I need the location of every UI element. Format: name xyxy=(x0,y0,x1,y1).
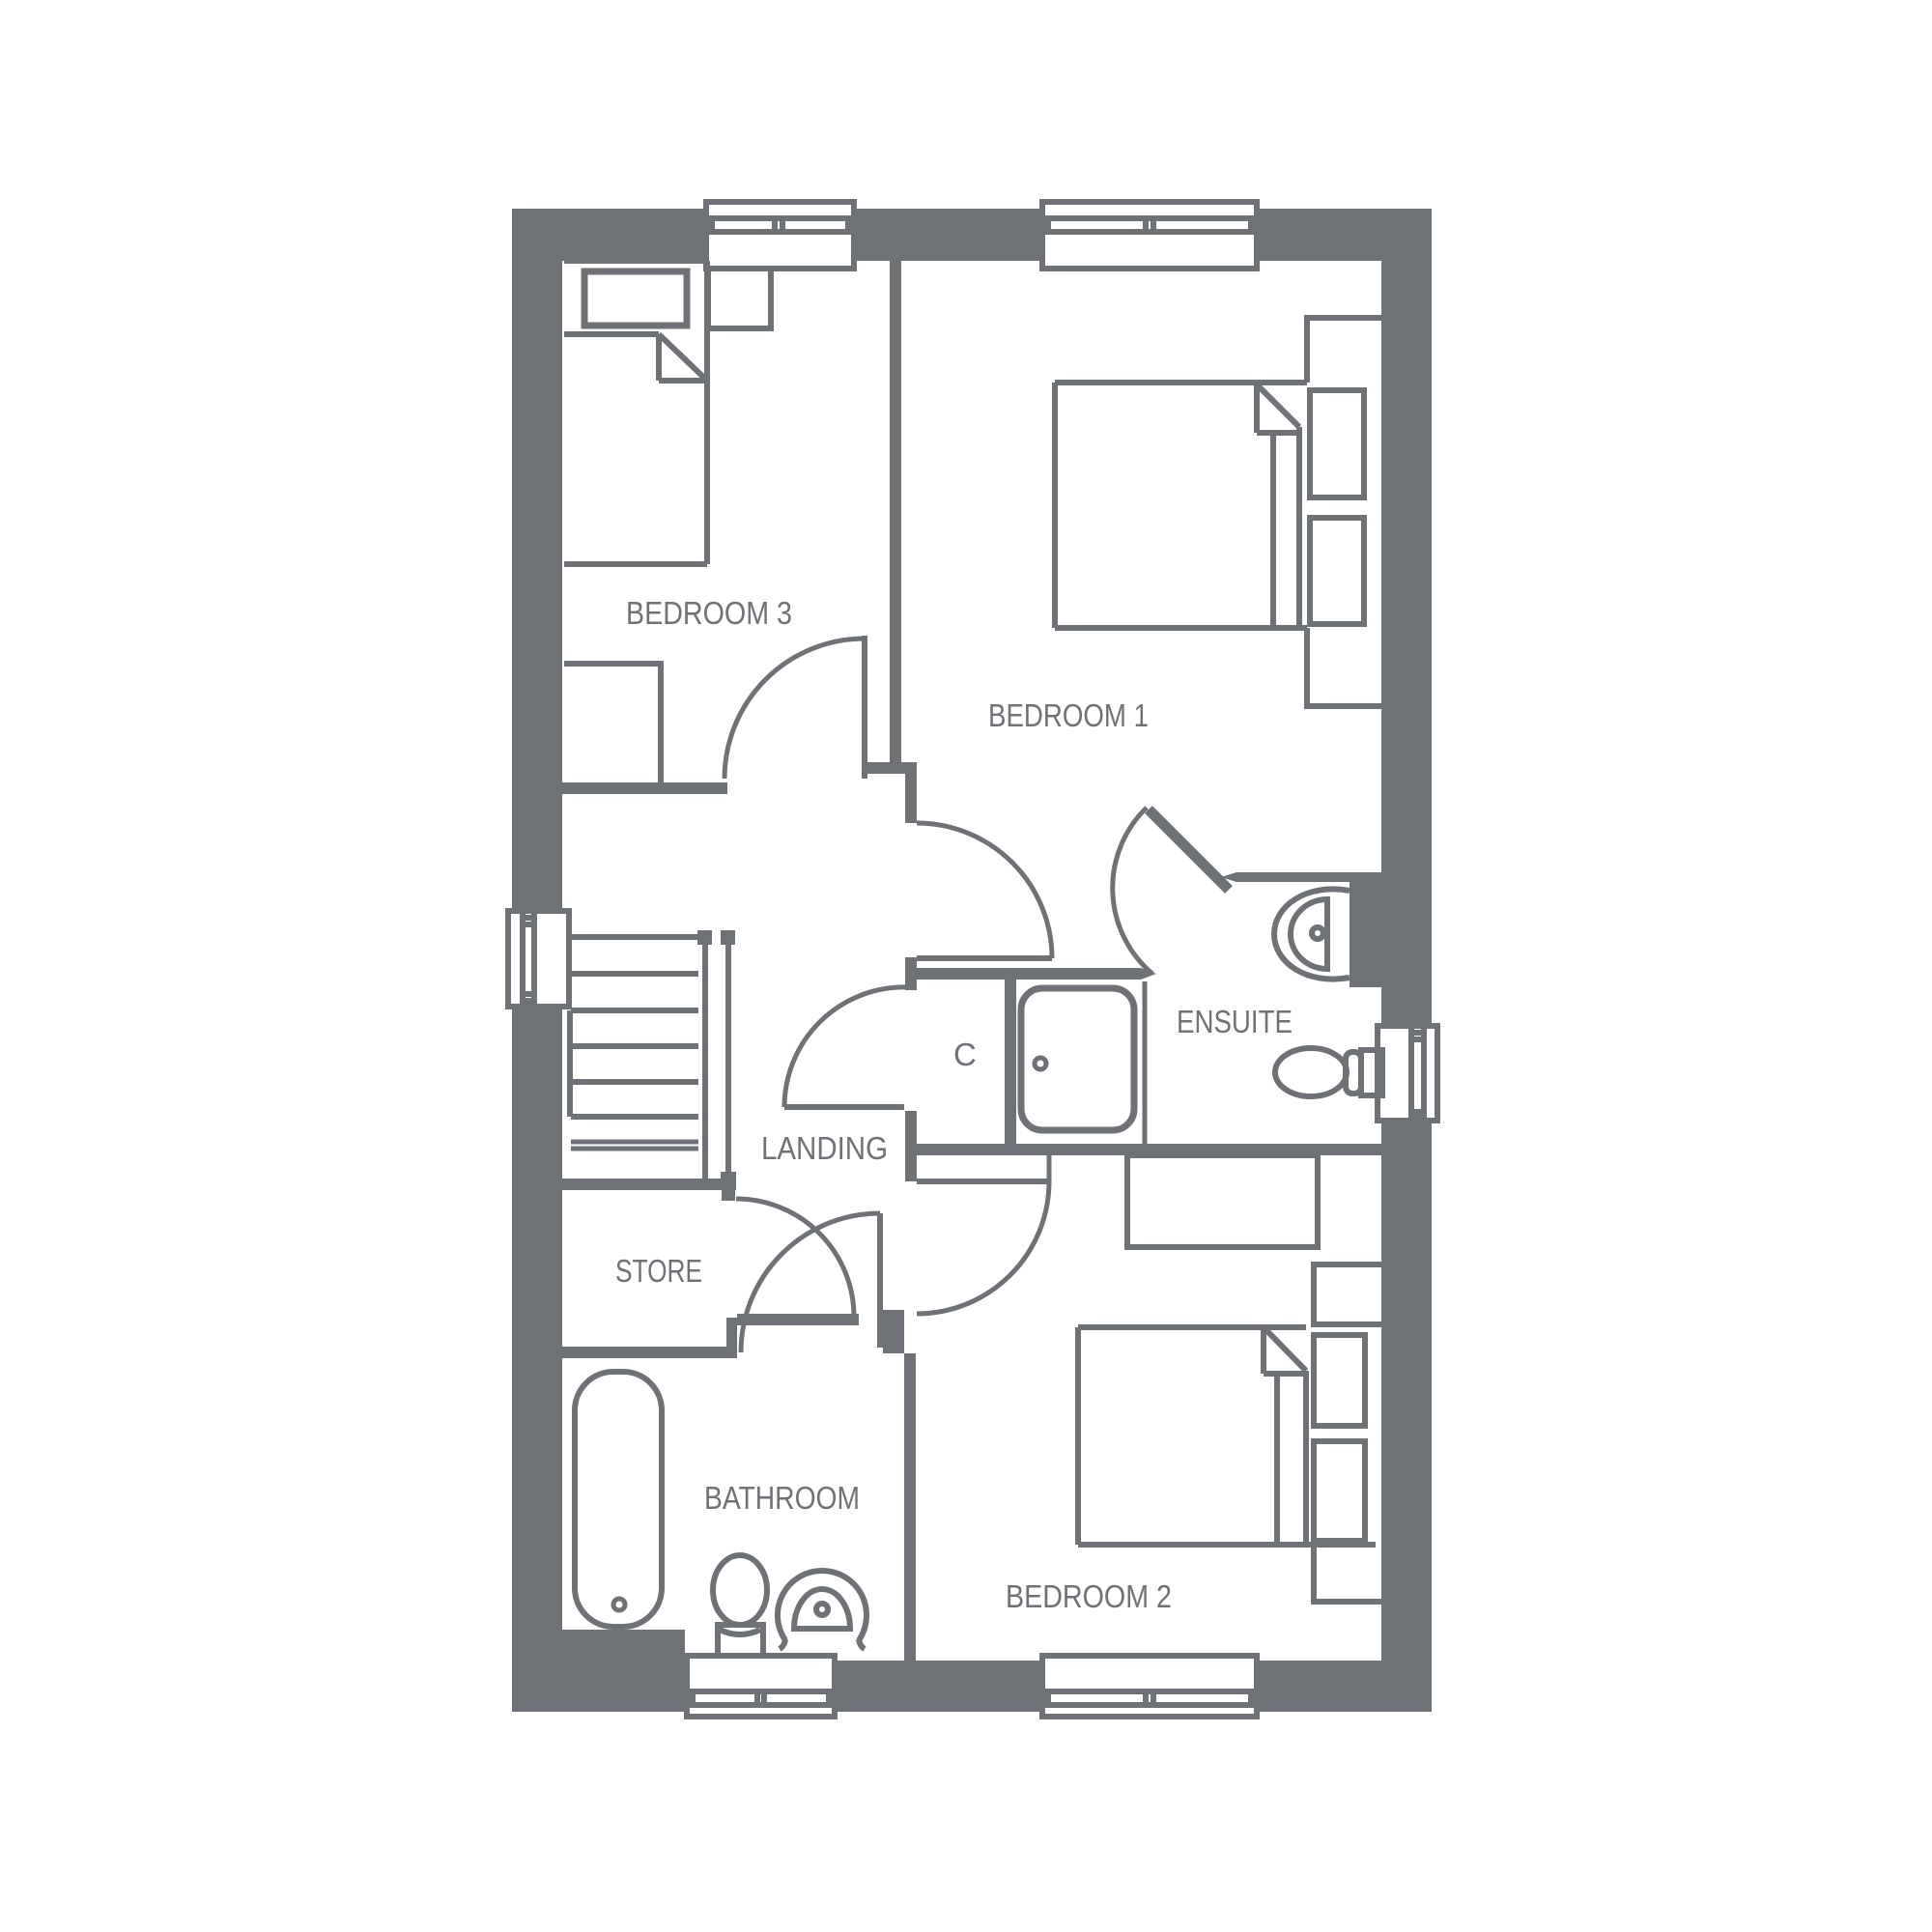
svg-text:BEDROOM 1: BEDROOM 1 xyxy=(988,697,1149,733)
svg-text:BATHROOM: BATHROOM xyxy=(704,1480,860,1516)
svg-text:ENSUITE: ENSUITE xyxy=(1177,1004,1293,1039)
svg-text:BEDROOM 3: BEDROOM 3 xyxy=(626,595,792,631)
svg-text:LANDING: LANDING xyxy=(761,1130,888,1166)
svg-text:C: C xyxy=(953,1037,977,1072)
svg-text:STORE: STORE xyxy=(615,1253,702,1289)
svg-text:BEDROOM 2: BEDROOM 2 xyxy=(1006,1578,1172,1614)
